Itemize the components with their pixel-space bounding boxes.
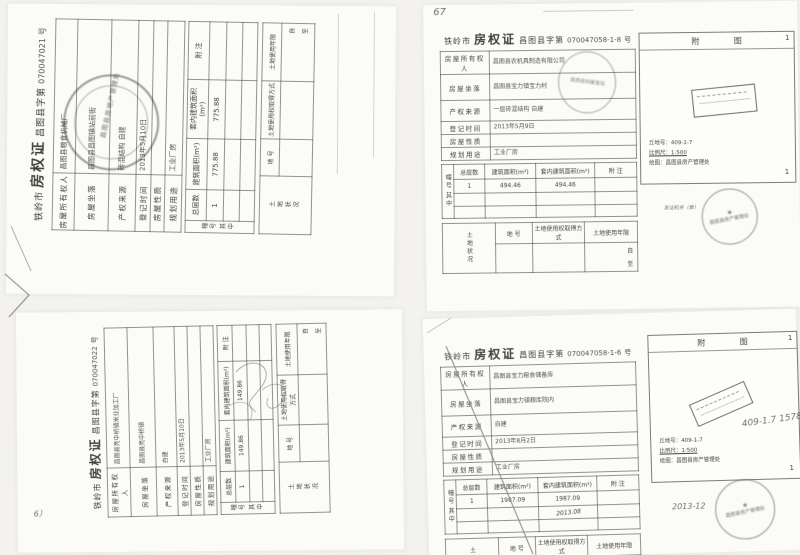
- issuer-note: 发证机关（章）: [664, 204, 699, 211]
- group2-label: 其中: [219, 222, 235, 231]
- usage-value: 工业厂房: [492, 458, 638, 475]
- owner-label: 房屋所有权人: [52, 173, 75, 230]
- empty-cell: [242, 22, 258, 80]
- usage-row: 规划用途 工业厂房: [164, 21, 185, 232]
- empty-cell: [595, 191, 637, 205]
- source-label: 产权来源: [108, 174, 136, 232]
- note-value: [597, 490, 639, 505]
- regtime-label: 登记时间: [135, 174, 151, 231]
- land-status-table: 土地状况 地 号 土地使用权取得方式 土地使用年限 自 至: [258, 22, 315, 235]
- building-row-group: 幢号 其中: [185, 220, 254, 233]
- land-from: 自: [301, 328, 310, 334]
- floors-value: 1: [235, 471, 250, 502]
- nature-label: 房屋性质: [190, 466, 204, 515]
- land-label: 土地状况: [464, 231, 473, 263]
- attached-plan-bottom-right: 附 图 1 丘地号：409-1-7 比例尺：1:500 绘图：昌图县房产管理处 …: [647, 331, 799, 481]
- cert-title: 铁岭市 房权证 昌图县字第 070047022 号: [83, 328, 104, 518]
- nature-label: 房屋性质: [441, 134, 490, 148]
- owner-label: 房屋所有权人: [441, 366, 491, 390]
- location-label: 房屋坐落: [130, 467, 157, 517]
- attach-title: 附 图: [691, 35, 758, 47]
- land-term-col: 土地使用年限: [585, 221, 638, 243]
- building-status-table: 幢号 其中 总层数 建筑面积(m²) 套内建筑面积(m²) 附 注 1 775.…: [184, 21, 258, 234]
- land-no-col: 地 号: [260, 139, 280, 176]
- empty-cell: [457, 508, 488, 522]
- corner-annotation: 6）: [34, 508, 47, 519]
- building-row-group: 幢号 其中: [221, 501, 275, 514]
- group1-label: 幢号: [445, 489, 454, 505]
- group2-label: 其中: [446, 507, 455, 523]
- certificate-bottom-right: 铁岭市 房权证 昌图县字第 070047058-1-6 号 房屋所有权人 昌图县…: [439, 341, 642, 555]
- group1-label: 幢号: [443, 173, 452, 189]
- land-term-col: 土地使用年限: [588, 534, 641, 555]
- col-note: 附 注: [595, 162, 637, 178]
- floorplan-sketch: [691, 84, 757, 118]
- title-cert: 房权证: [474, 30, 516, 48]
- scanned-document-canvas: 铁岭市 房权证 昌图县字第 070047021 号 房屋所有权人 昌图县粮食机械…: [0, 0, 800, 555]
- floors-value: 1: [454, 179, 485, 193]
- usage-value: 工业厂房: [165, 21, 185, 175]
- scan-page-top-right: 67 铁岭市 房权证 昌图县字第 070047058-1-8 号 房屋所有权人 …: [422, 0, 800, 312]
- owner-label: 房屋所有权人: [107, 468, 131, 518]
- note-value: [232, 325, 247, 361]
- land-no-col: 地 号: [498, 537, 536, 555]
- note-value: [209, 22, 227, 80]
- source-value: 一层砖混结构 自建: [490, 98, 636, 121]
- col-inner: 套内建筑面积(m²): [187, 79, 209, 138]
- round-stamp: ★ 昌图县房产管理处: [714, 478, 776, 540]
- usage-row: 规划用途 工业厂房: [441, 145, 636, 160]
- land-term-fromto: 自 至: [284, 25, 311, 80]
- land-status-table: 土地状况 地 号 土地使用权取得方式 土地使用年限 自 至: [445, 533, 642, 555]
- title-cert: 房权证: [86, 437, 104, 479]
- empty-cell: [249, 471, 263, 502]
- cert-title: 铁岭市 房权证 昌图县字第 070047058-1-8 号: [439, 29, 635, 48]
- building-status-table: 幢号 其中 总层数 建筑面积(m²) 套内建筑面积(m²) 附 注 1 494.…: [441, 162, 638, 219]
- title-city: 铁岭市: [444, 351, 471, 363]
- land-no-value: [299, 424, 329, 462]
- note-value: [595, 177, 637, 192]
- area-value: 1987.09: [487, 493, 538, 508]
- group1-label: 幢号: [201, 222, 217, 231]
- land-mode-value: [298, 374, 328, 425]
- title-serial: 070047021: [37, 38, 47, 84]
- building-status-table: 幢号 其中 总层数 建筑面积(m²) 套内建筑面积(m²) 附 注 1 149.…: [216, 324, 275, 515]
- title-serial: 070047058-1-6: [567, 349, 621, 359]
- location-value: 昌图县宝力镇粮库院内: [490, 385, 637, 415]
- empty-cell: [262, 470, 275, 501]
- oval-stamp: 昌图县档案查验: [558, 51, 617, 114]
- cert-info-table: 房屋所有权人 昌图县亮中桥镇米业加工厂 房屋坐落 昌图县亮中桥镇 产权来源 自建…: [103, 325, 217, 517]
- land-mode-value: [280, 81, 314, 140]
- title-no: 号: [37, 27, 48, 35]
- col-floors: 总层数: [456, 479, 487, 495]
- land-status-table: 土地状况 地 号 土地使用权取得方式 土地使用年限 自 至: [442, 221, 639, 274]
- cert-info-table: 房屋所有权人 昌图县宝力粮食储备库 房屋坐落 昌图县宝力镇粮库院内 产权来源 自…: [440, 361, 639, 476]
- page-edge-line: [373, 12, 375, 157]
- regtime-label: 登记时间: [177, 466, 191, 515]
- empty-cell: [224, 139, 241, 190]
- area-value: 775.88: [207, 139, 225, 190]
- title-serial: 070047058-1-8: [567, 36, 621, 45]
- attach-caption: 丘地号：409-1-7 比例尺：1:500 绘图：昌图县房产管理处: [659, 436, 720, 467]
- land-label: 土地状况: [268, 200, 300, 210]
- group2-label: 其中: [443, 191, 452, 207]
- scan-page-bottom-right: 铁岭市 房权证 昌图县字第 070047058-1-6 号 房屋所有权人 昌图县…: [422, 308, 800, 555]
- building-row-group: 幢号 其中: [442, 164, 455, 218]
- empty-cell: [259, 324, 272, 360]
- empty-cell: [226, 22, 243, 80]
- land-header-row: 土地状况 地 号 土地使用权取得方式 土地使用年限: [259, 23, 282, 234]
- owner-label: 房屋所有权人: [440, 51, 489, 75]
- empty-cell: [485, 205, 536, 218]
- land-from: 自: [627, 246, 633, 255]
- attach-corner-no: 1: [789, 464, 794, 472]
- empty-cell: [248, 420, 262, 471]
- certificate-bottom-left: 铁岭市 房权证 昌图县字第 070047022 号 房屋所有权人 昌图县亮中桥镇…: [83, 323, 305, 518]
- source-label: 产权来源: [156, 467, 178, 516]
- land-mode-value: [532, 243, 585, 273]
- cert-title: 铁岭市 房权证 昌图县字第 070047058-1-6 号: [439, 341, 635, 363]
- land-term-value: 自 至: [585, 242, 638, 272]
- title-serial: 070047022: [91, 346, 100, 386]
- land-label: 土地状况: [467, 546, 477, 555]
- location-value: 昌图县亮中桥镇: [127, 327, 156, 468]
- source-label: 产权来源: [442, 415, 492, 437]
- empty-cell: [239, 190, 255, 221]
- scan-page-top-left: 铁岭市 房权证 昌图县字第 070047021 号 房屋所有权人 昌图县粮食机械…: [5, 3, 397, 298]
- land-no-value: [279, 139, 313, 177]
- scan-page-bottom-left: 铁岭市 房权证 昌图县字第 070047022 号 房屋所有权人 昌图县亮中桥镇…: [15, 308, 405, 553]
- land-mode-col: 土地使用权取得方式: [277, 374, 299, 425]
- title-county: 昌图县字第: [519, 348, 564, 360]
- col-floors: 总层数: [185, 189, 207, 220]
- empty-cell: [246, 325, 260, 361]
- building-status-table: 幢号 其中 总层数 建筑面积(m²) 套内建筑面积(m²) 附 注 1 1987…: [443, 474, 640, 534]
- usage-label: 规划用途: [203, 466, 217, 515]
- location-label: 房屋坐落: [74, 173, 109, 231]
- group1-label: 幢号: [230, 503, 246, 512]
- empty-cell: [488, 520, 539, 533]
- cert-form: 铁岭市 房权证 昌图县字第 070047022 号 房屋所有权人 昌图县亮中桥镇…: [83, 323, 330, 518]
- caption-line: 绘图：昌图县房产管理处: [649, 159, 710, 170]
- scan-artifact-line: [543, 10, 633, 12]
- empty-cell: [457, 521, 488, 534]
- usage-value: 工业厂房: [200, 326, 216, 466]
- col-note: 附 注: [597, 475, 639, 491]
- title-no: 号: [90, 336, 100, 343]
- attached-plan-page: 附 图 1 丘地号：409-1-7 比例尺：1:500 绘图：昌图县房产管理处 …: [638, 31, 796, 185]
- empty-cell: [485, 192, 536, 206]
- empty-cell: [454, 193, 485, 206]
- location-label: 房屋坐落: [440, 74, 489, 101]
- title-no: 号: [624, 35, 631, 45]
- nature-label: 房屋性质: [150, 175, 165, 232]
- land-label: 土地状况: [288, 482, 320, 492]
- handwritten-note: [224, 80, 243, 140]
- area-value: 149.86: [234, 420, 249, 471]
- area-value: 494.46: [485, 178, 536, 193]
- col-note: 附 注: [217, 325, 233, 361]
- col-note: 附 注: [188, 21, 210, 79]
- col-floors: 总层数: [454, 164, 485, 179]
- land-header-row: 土地状况 地 号 土地使用权取得方式 土地使用年限: [445, 534, 641, 555]
- empty-cell: [261, 419, 274, 470]
- attached-plan-page: 附 图 1 丘地号：409-1-7 比例尺：1:500 绘图：昌图县房产管理处 …: [647, 331, 800, 483]
- land-no-col: 地 号: [278, 425, 300, 462]
- land-mode-col: 土地使用权取得方式: [532, 222, 585, 244]
- land-mode-col: 土地使用权取得方式: [261, 81, 281, 139]
- col-inner: 套内建筑面积(m²): [218, 361, 234, 420]
- title-city: 铁岭市: [92, 482, 104, 509]
- title-cert: 房权证: [474, 345, 516, 363]
- oval-stamp-text: 昌图县档案查验: [564, 76, 609, 89]
- land-term-fromto: 自 至: [298, 325, 325, 373]
- empty-cell: [454, 206, 485, 218]
- empty-cell: [223, 190, 240, 221]
- caption-line: 绘图：昌图县房产管理处: [660, 456, 721, 468]
- land-from: 自: [287, 28, 296, 34]
- title-county: 昌图县字第: [519, 35, 564, 47]
- land-row-group: 土地状况: [279, 461, 330, 513]
- date-handwriting: 2013-12: [672, 501, 706, 511]
- land-header-row: 土地状况 地 号 土地使用权取得方式 土地使用年限: [442, 221, 637, 244]
- col-area: 建筑面积(m²): [487, 478, 538, 494]
- col-inner: 套内建筑面积(m²): [536, 163, 595, 179]
- cert-title: 铁岭市 房权证 昌图县字第 070047021 号: [26, 18, 50, 230]
- attached-plan-top-right: 附 图 1 丘地号：409-1-7 比例尺：1:500 绘图：昌图县房产管理处 …: [638, 31, 794, 183]
- land-term-value: 自 至: [297, 323, 327, 374]
- land-to: 至: [627, 259, 633, 268]
- usage-label: 规划用途: [441, 147, 490, 161]
- land-term-col: 土地使用年限: [262, 23, 282, 81]
- col-floors: 总层数: [220, 471, 236, 502]
- land-row-group: 土地状况: [259, 176, 312, 235]
- regtime-label: 登记时间: [441, 121, 490, 135]
- land-no-col: 地 号: [495, 222, 532, 243]
- attach-caption: 丘地号：409-1-7 比例尺：1:500 绘图：昌图县房产管理处: [649, 139, 710, 169]
- land-status-table: 土地状况 地 号 土地使用权取得方式 土地使用年限 自 至: [275, 323, 330, 514]
- title-city: 铁岭市: [444, 36, 471, 47]
- land-term-fromto: 自 至: [586, 244, 636, 271]
- col-area: 建筑面积(m²): [485, 163, 536, 179]
- title-county: 昌图县字第: [90, 389, 102, 434]
- cert-form: 铁岭市 房权证 昌图县字第 070047058-1-6 号 房屋所有权人 昌图县…: [439, 341, 642, 555]
- usage-value: 工业厂房: [490, 145, 636, 160]
- empty-cell: [597, 504, 639, 518]
- empty-cell: [598, 517, 640, 530]
- land-term-value: 自 至: [281, 23, 315, 82]
- col-inner: 套内建筑面积(m²): [538, 476, 597, 493]
- floors-value: 1: [456, 494, 487, 509]
- land-term-col: 土地使用年限: [276, 324, 298, 375]
- attach-page-no: 1: [785, 34, 790, 42]
- attach-corner-no: 1: [785, 168, 790, 176]
- official-seal-large: 昌图县房地产管理处: [63, 74, 160, 171]
- empty-cell: [241, 80, 257, 139]
- source-label: 产权来源: [441, 100, 490, 122]
- empty-cell: [595, 204, 637, 217]
- title-cert: 房权证: [27, 140, 48, 188]
- empty-cell: [240, 139, 256, 190]
- group2-label: 其中: [248, 503, 264, 512]
- land-mode-col: 土地使用权取得方式: [535, 535, 588, 555]
- title-county: 昌图县字第: [33, 87, 47, 137]
- title-city: 铁岭市: [32, 191, 46, 221]
- col-area: 建筑面积(m²): [186, 138, 208, 189]
- land-to: 至: [313, 328, 322, 334]
- col-area: 建筑面积(m²): [219, 420, 235, 471]
- attach-header: 附 图 1: [640, 32, 794, 51]
- usage-label: 规划用途: [443, 462, 492, 476]
- inner-area-value: 775.88: [208, 80, 226, 139]
- floors-value: 1: [206, 190, 224, 221]
- page-edge-line: [337, 14, 339, 174]
- usage-label: 规划用途: [164, 175, 182, 232]
- attach-page-no: 1: [788, 334, 793, 342]
- land-no-value: [495, 243, 532, 272]
- round-stamp: ★ 昌图县房产管理处: [701, 188, 758, 245]
- owner-value: 昌图县亮中桥镇米业加工厂: [104, 328, 130, 468]
- corner-annotation: 67: [433, 7, 446, 18]
- attach-header: 附 图 1: [648, 332, 796, 353]
- rotated-area: 铁岭市 房权证 昌图县字第 070047022 号 房屋所有权人 昌图县亮中桥镇…: [86, 326, 306, 518]
- title-no: 号: [624, 347, 631, 357]
- location-label: 房屋坐落: [441, 389, 491, 416]
- seal-text: 昌图县房地产管理处: [98, 66, 124, 144]
- land-row-group: 土地状况: [442, 223, 495, 274]
- land-to: 至: [300, 28, 309, 34]
- land-row-group: 土地状况: [445, 538, 499, 555]
- attach-title: 附 图: [697, 335, 764, 348]
